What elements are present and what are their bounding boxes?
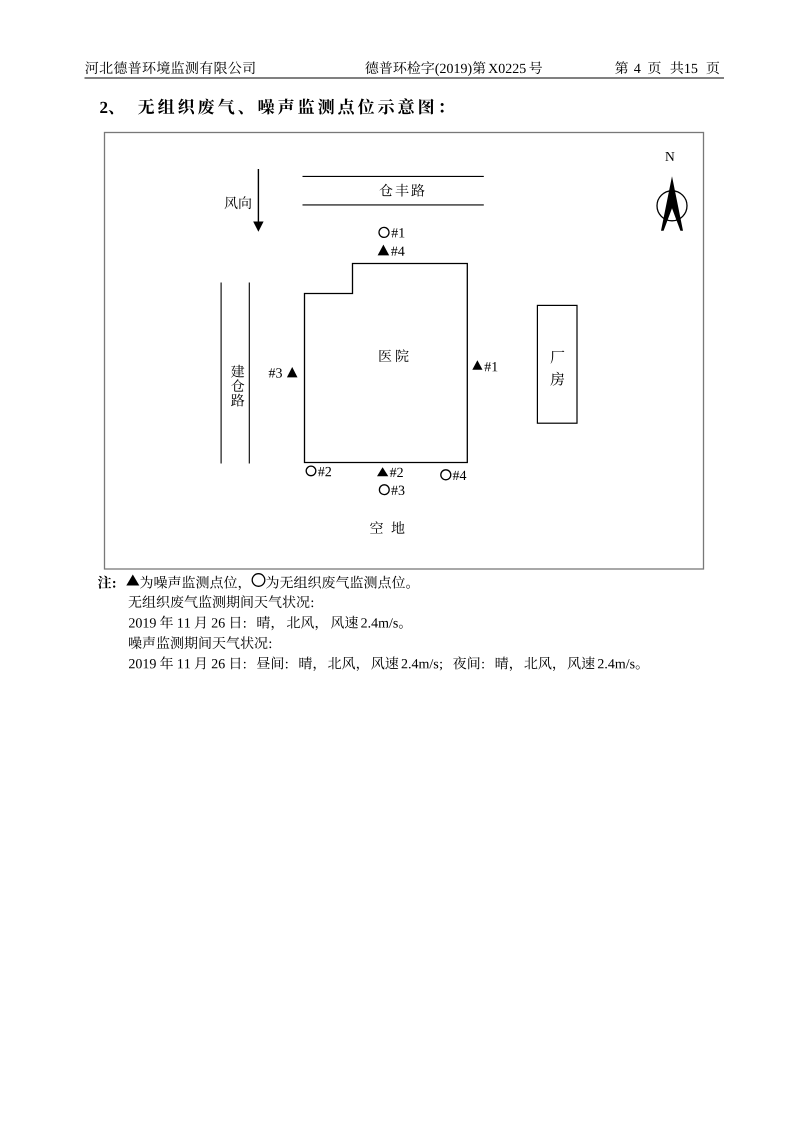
svg-text:N: N [665, 149, 675, 164]
